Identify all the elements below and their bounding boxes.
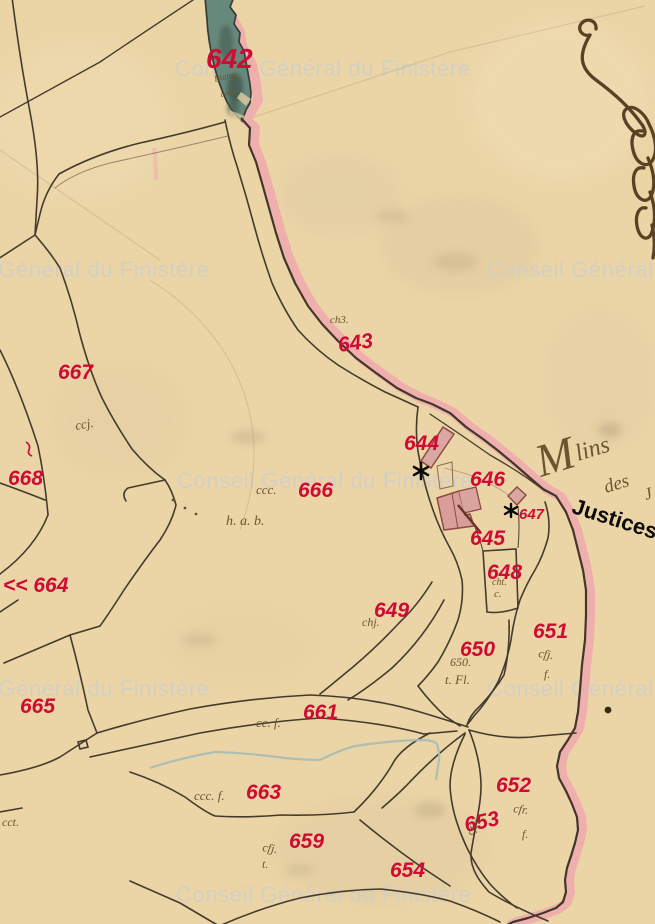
svg-text:f.: f. (544, 667, 550, 681)
svg-text:Conseil Général du Finistère: Conseil Général du Finistère (0, 257, 210, 282)
svg-text:ccc.: ccc. (256, 482, 277, 497)
svg-text:666: 666 (298, 479, 333, 502)
svg-text:t. Fl.: t. Fl. (445, 672, 470, 687)
svg-text:cc. f.: cc. f. (256, 715, 281, 730)
svg-text:667: 667 (58, 361, 94, 384)
svg-text:665: 665 (20, 695, 55, 718)
svg-text:644: 644 (404, 432, 439, 455)
svg-text:chj.: chj. (362, 615, 380, 629)
svg-text:643: 643 (336, 329, 374, 357)
svg-text:cfr.: cfr. (513, 801, 530, 817)
svg-text:647: 647 (519, 506, 545, 523)
svg-text:654: 654 (390, 859, 425, 882)
svg-text:651: 651 (533, 620, 568, 643)
svg-text:650.: 650. (450, 655, 471, 669)
svg-text:642: 642 (206, 43, 253, 74)
svg-text:ch3.: ch3. (330, 314, 349, 326)
svg-text:cct.: cct. (2, 815, 19, 829)
svg-text:cfj.: cfj. (262, 840, 279, 856)
svg-text:t.: t. (262, 857, 268, 871)
svg-text:h. a. b.: h. a. b. (226, 514, 265, 529)
svg-text:cfj.: cfj. (538, 646, 555, 662)
svg-text:<< 664: << 664 (3, 574, 69, 597)
svg-text:f.: f. (522, 827, 528, 841)
svg-text:646: 646 (470, 468, 505, 491)
svg-text:659: 659 (289, 830, 324, 853)
svg-text:652: 652 (496, 774, 531, 797)
svg-text:cht.: cht. (492, 577, 507, 588)
svg-text:668: 668 (8, 467, 43, 490)
svg-text:c.: c. (494, 588, 502, 600)
svg-text:663: 663 (246, 781, 281, 804)
svg-text:Conseil Général du Finistère: Conseil Général du Finistère (487, 257, 655, 282)
svg-text:645: 645 (470, 527, 505, 550)
svg-text:Conseil Général du Finistère: Conseil Général du Finistère (487, 676, 655, 701)
svg-text:ccj.: ccj. (74, 415, 95, 433)
svg-text:661: 661 (303, 701, 338, 724)
svg-text:ccc. f.: ccc. f. (194, 788, 225, 803)
